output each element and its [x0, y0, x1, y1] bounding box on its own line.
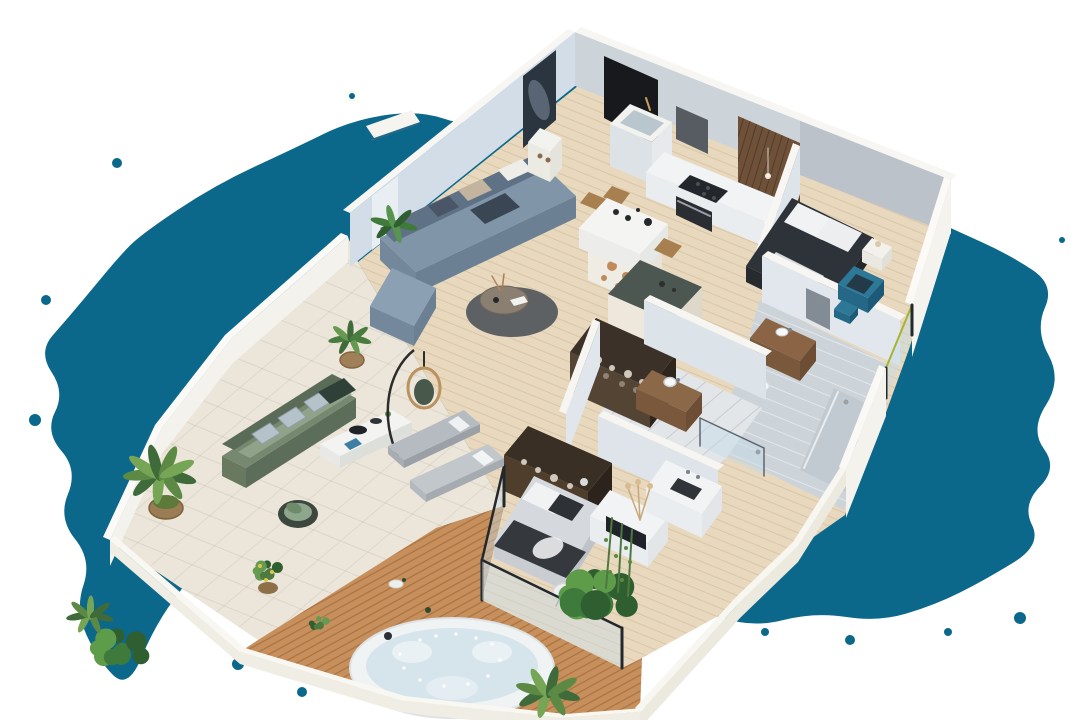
egg-chair-cushion: [414, 379, 434, 405]
bathroom2-vessel-sink: [664, 378, 676, 387]
hot-tub-seat-3: [426, 676, 478, 700]
ensuite-basin: [776, 328, 788, 336]
outdoor-tray-2: [370, 418, 382, 424]
deck-shrub: [559, 569, 638, 620]
terrace-pot-1: [340, 352, 364, 368]
bedroom2-wardrobe-mirror: [580, 478, 588, 486]
hot-tub-control: [384, 632, 392, 640]
terrace-pot-3: [258, 582, 278, 594]
ensuite-faucet: [788, 328, 792, 332]
outdoor-tray-1: [349, 426, 367, 435]
pendant-light: [765, 173, 771, 179]
corner-plant: [90, 628, 149, 666]
apartment-3d-floorplan-render: [0, 0, 1075, 720]
deck-side-table: [389, 580, 403, 588]
nightstand-lamp: [875, 241, 881, 247]
table-bowl: [493, 297, 499, 303]
ensuite-shower-head: [844, 400, 849, 405]
screenshot-root: [0, 0, 1075, 720]
bathroom2-faucet: [676, 378, 680, 382]
shower2-head: [756, 450, 761, 455]
hot-tub-seat-1: [392, 641, 432, 663]
